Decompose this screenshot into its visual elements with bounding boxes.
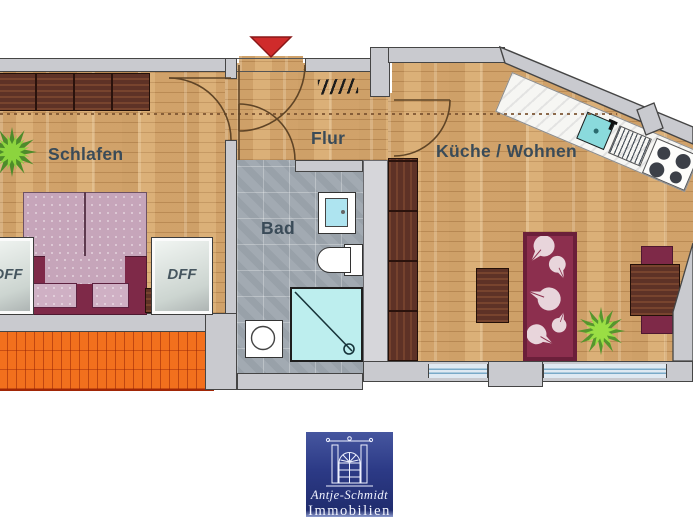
bedroom-hall-wall-stub xyxy=(225,58,237,79)
plant-kitchen xyxy=(572,302,630,360)
floorplan-canvas: Schlafen Flur Küche / Wohnen Bad DFF DFF xyxy=(0,0,693,520)
bedroom-doorway-floor xyxy=(225,78,237,140)
realtor-logo: Antje-Schmidt Immobilien xyxy=(306,432,393,517)
logo-immobilien-text: Immobilien xyxy=(306,503,393,520)
washing-machine xyxy=(245,320,283,358)
sideboard xyxy=(476,268,509,323)
kitchen-label: Küche / Wohnen xyxy=(436,141,577,162)
bedroom-window-wall xyxy=(0,313,225,332)
roof-window-right-label: DFF xyxy=(152,266,212,283)
kitchen-window-2 xyxy=(543,364,667,378)
alcove-top-wall xyxy=(388,47,505,63)
bath-sink xyxy=(318,192,356,234)
bed-duvet-foot xyxy=(45,256,125,284)
bed-cushion-left xyxy=(33,283,77,308)
logo-portal-icon xyxy=(306,435,393,489)
bottom-wall-pillar xyxy=(488,361,543,387)
bed xyxy=(23,192,147,315)
roof-window-left-label: DFF xyxy=(0,266,30,283)
logo-name-text: Antje-Schmidt xyxy=(306,488,393,503)
bedroom-label: Schlafen xyxy=(48,144,123,165)
kitchen-tall-cabinet xyxy=(388,158,418,361)
entrance-threshold-floor xyxy=(239,56,303,72)
chair-bottom xyxy=(641,313,673,334)
shower xyxy=(290,287,363,362)
bathroom-label: Bad xyxy=(261,218,295,239)
rug xyxy=(523,232,577,361)
plant-bedroom xyxy=(0,122,42,182)
bath-top-wall xyxy=(295,160,363,172)
toilet-bowl xyxy=(317,247,351,273)
drainboard xyxy=(608,125,652,166)
corner-wall-block xyxy=(205,313,237,390)
hallway-label: Flur xyxy=(311,128,345,149)
alcove-pillar xyxy=(370,47,390,97)
roof-strip xyxy=(0,330,214,391)
top-wall-left xyxy=(0,58,237,72)
entrance-arrow-icon xyxy=(251,37,291,57)
bed-cushion-right xyxy=(92,283,129,308)
dining-table xyxy=(630,264,680,316)
top-wall-mid xyxy=(305,58,373,72)
bath-bottom-wall xyxy=(237,373,363,390)
kitchen-sink xyxy=(576,112,615,150)
kitchen-window-1 xyxy=(428,364,488,378)
coat-rack-symbol xyxy=(318,78,358,94)
wardrobe xyxy=(0,73,150,111)
bath-kitchen-wall xyxy=(363,160,388,375)
bedroom-bath-wall xyxy=(225,140,237,315)
